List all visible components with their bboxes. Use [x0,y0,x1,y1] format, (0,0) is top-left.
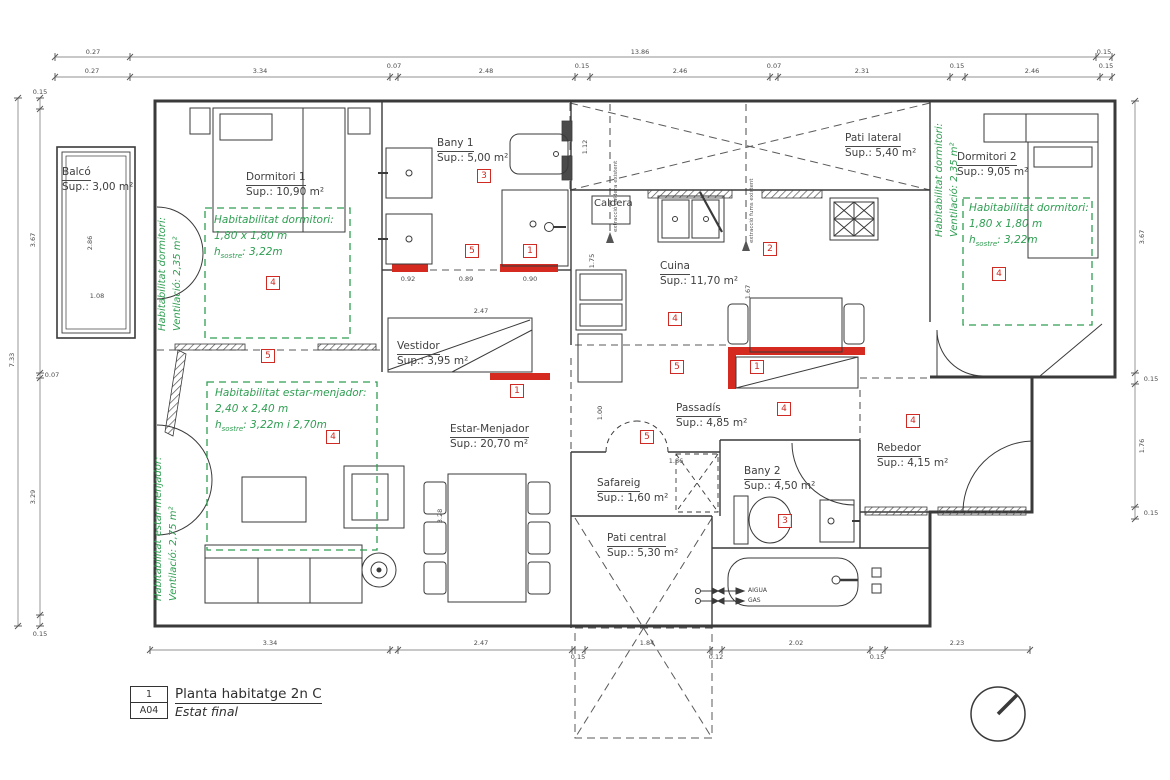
pati-lateral-hatch [570,103,930,190]
door-swings [157,207,1033,535]
window-sills [165,121,1026,515]
balcony-outline [57,147,135,338]
habitability-zones [205,198,1092,550]
title-text: Planta habitatge 2n C Estat final [175,686,322,719]
drawing-subtitle: Estat final [175,704,322,719]
floor-plan-page: { "colors": {"line":"#3a3a3a","green":"#… [0,0,1170,780]
floor-plan-linework [0,0,1170,780]
sheet-number: A04 [131,703,167,718]
exterior-walls [155,101,1115,626]
dashed-walls [157,104,930,452]
pati-central-hatch [575,518,712,738]
furniture [190,108,1102,606]
north-arrow-icon [971,687,1025,741]
new-red-walls [392,264,865,389]
title-block: 1 A04 Planta habitatge 2n C Estat final [130,686,322,719]
closet-outline [736,357,858,388]
drawing-title: Planta habitatge 2n C [175,686,322,704]
detail-reference-box: 1 A04 [130,686,168,719]
interior-walls [382,101,1032,628]
drawing-stage: BalcóSup.: 3,00 m²Dormitori 1Sup.: 10,90… [0,0,1170,780]
detail-number: 1 [131,687,167,703]
